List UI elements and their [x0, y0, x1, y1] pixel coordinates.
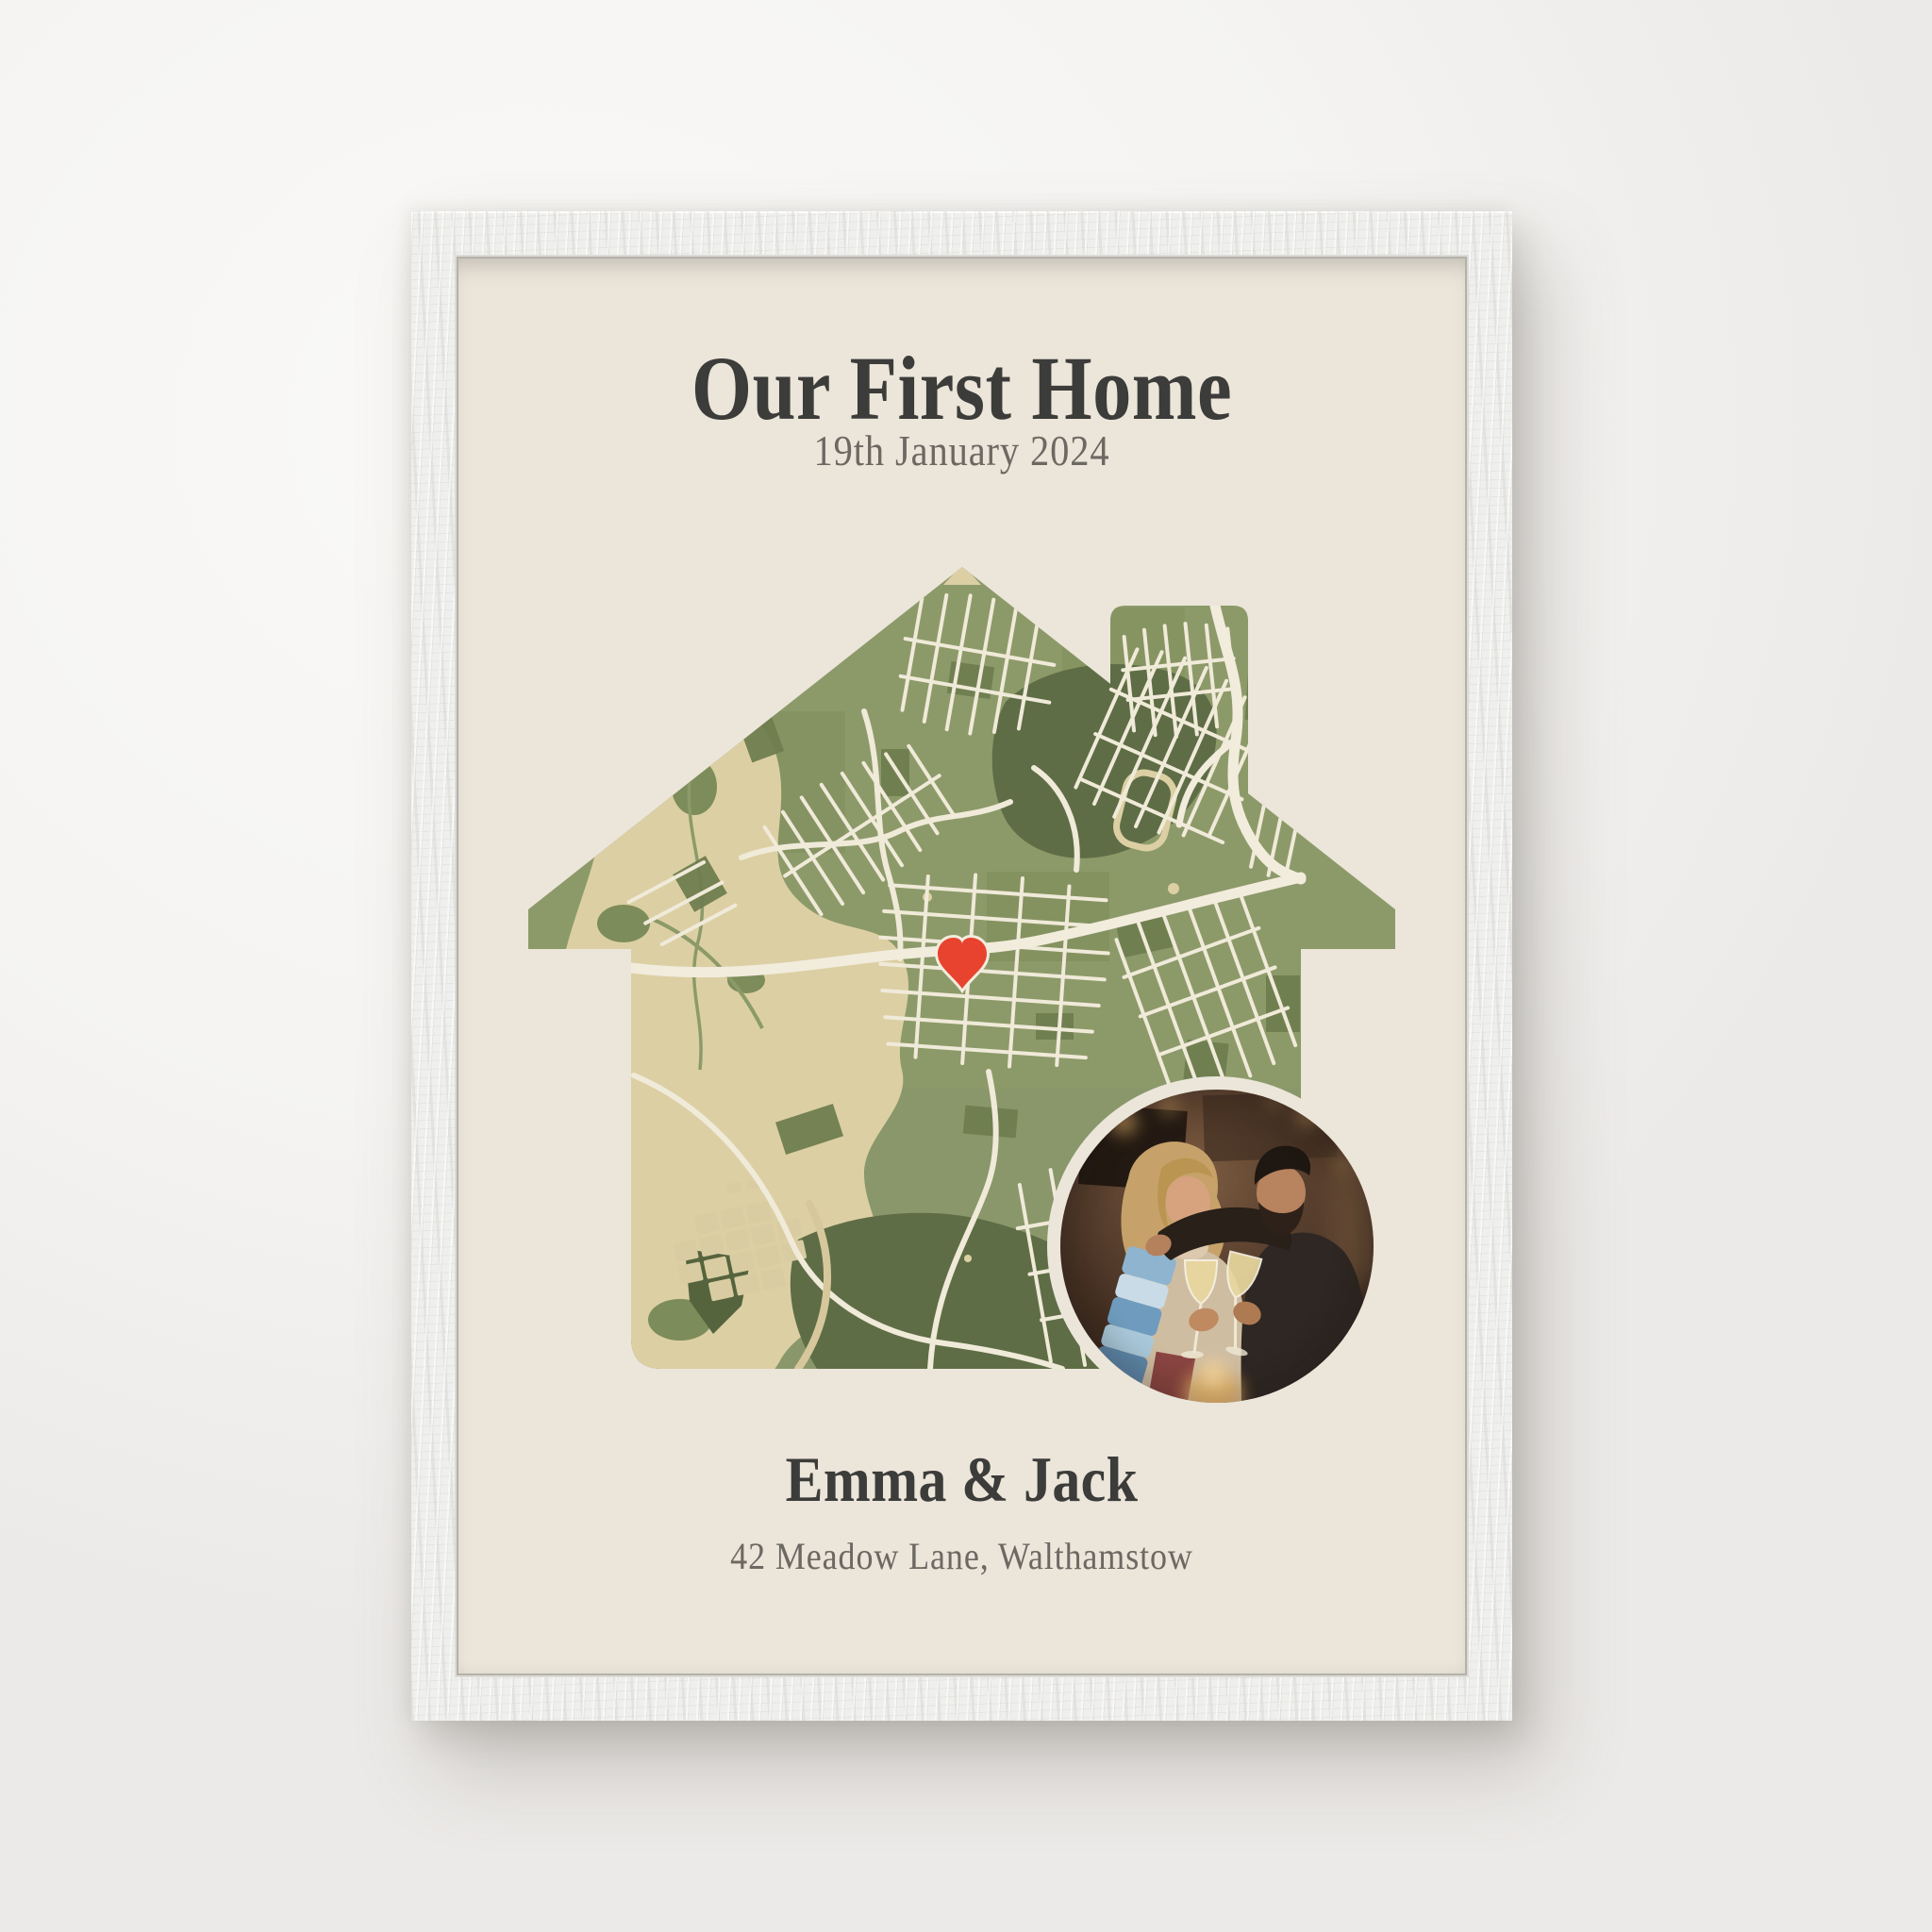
- map-poster: Our First Home 19th January 2024 Emma & …: [458, 258, 1465, 1674]
- poster-address: 42 Meadow Lane, Walthamstow: [508, 1536, 1414, 1578]
- poster-names: Emma & Jack: [519, 1443, 1405, 1515]
- picture-frame: Our First Home 19th January 2024 Emma & …: [411, 211, 1512, 1721]
- poster-date: 19th January 2024: [519, 426, 1405, 475]
- poster-title: Our First Home: [529, 338, 1395, 440]
- product-photo-background: Our First Home 19th January 2024 Emma & …: [0, 0, 1932, 1932]
